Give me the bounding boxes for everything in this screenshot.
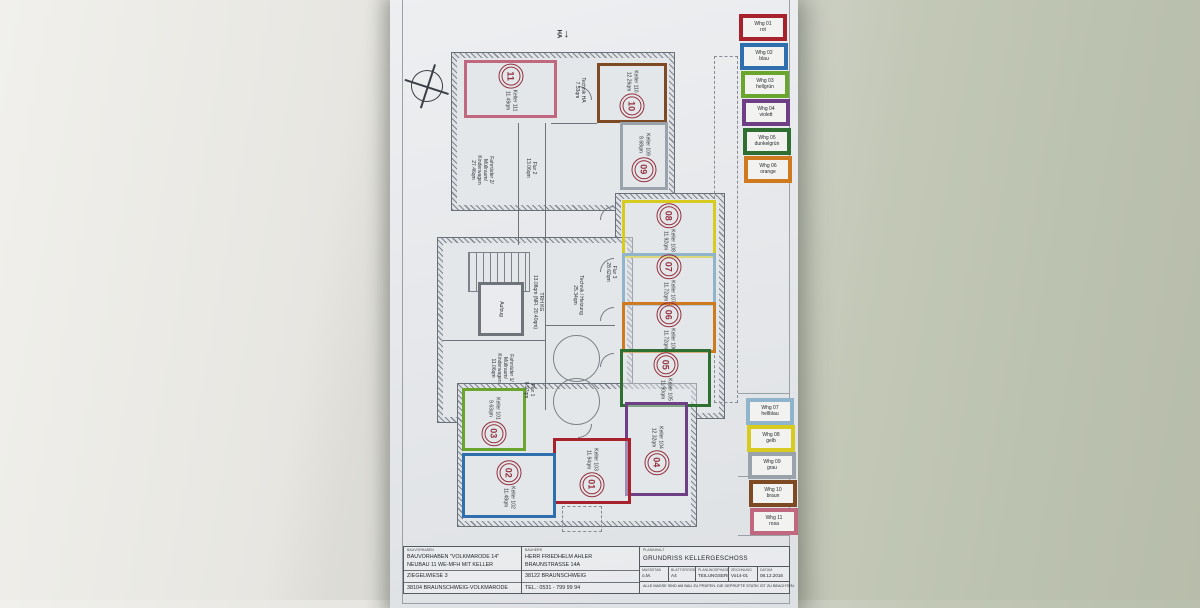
legend-item-whg-05: Whg 05dunkelgrün [743,128,791,155]
partition-line [551,123,597,124]
partition-line [545,325,615,326]
title-block: BAUVORHABEN BAUVORHABEN "VOLKMARODE 14" … [403,546,790,594]
room-keller-109: Keller 1098.68qm 09 [620,122,668,190]
room-label: Keller 10811.92qm [663,229,676,252]
space-trh: TRH KG13.08qm (NFl. 20.40qm) [532,275,544,329]
room-keller-110: Keller 11012.26qm 10 [597,63,667,123]
legend-item-whg-06: Whg 06orange [744,156,792,183]
unit-number-badge: 09 [635,160,654,179]
client-line: BRAUNSTRASSE 14A [525,561,636,569]
unit-number-badge: 05 [656,355,675,374]
room-label: Keller 10412.32qm [650,426,663,449]
unit-number-badge: 04 [647,453,666,472]
client-line: 38122 BRAUNSCHWEIG [525,572,636,580]
ha-label: HA [555,30,561,39]
legend-divider [738,476,790,477]
legend-item-whg-10: Whg 10braun [749,480,797,507]
partition-line [545,123,546,410]
heating-tank [553,378,600,425]
dashed-outline-east [714,56,738,403]
room-keller-106: 06 Keller 10611.72qm [622,302,716,353]
legend-item-whg-07: Whg 07hellblau [746,398,794,425]
partition-line [443,340,545,341]
legend-item-whg-09: Whg 09grau [748,452,796,479]
room-keller-111: 11 Keller 11111.49qm [464,60,557,118]
room-keller-105: 05 Keller 10511.90qm [620,349,711,407]
title-block-project: BAUVORHABEN BAUVORHABEN "VOLKMARODE 14" … [404,547,522,593]
unit-number-badge: 02 [500,463,519,482]
unit-number-badge: 01 [583,475,602,494]
room-label: Keller 10211.48qm [503,486,516,509]
space-technik-heizung: Technik / Heizung25.34qm [572,274,584,316]
space-fahrraeder-2: Fahrräder 2/ Müllraum/ Kinderwagen27.46q… [470,149,494,191]
elevator-label: Aufzug [498,301,504,317]
room-label: Keller 11012.26qm [626,70,639,92]
room-label: Keller 1019.63qm [488,397,501,420]
project-line: BAUVORHABEN "VOLKMARODE 14" [407,553,518,561]
title-block-client: BAUHERR HERR FRIEDHELM AHLER BRAUNSTRASS… [522,547,640,593]
space-fahrraeder-1: Fahrräder 1/ Müllraum/ Kinderwagen11.06q… [490,347,514,389]
room-keller-108: 08 Keller 10811.92qm [622,200,716,258]
unit-number-badge: 07 [660,257,679,276]
unit-number-badge: 10 [623,97,642,116]
down-arrow-icon: ↓ [564,28,570,40]
unit-number-badge: 06 [660,305,679,324]
room-label: Keller 10511.90qm [659,378,672,401]
drawing-title: GRUNDRISS KELLERGESCHOSS [643,555,786,562]
legend-divider [738,535,790,536]
field-blattgroesse: BLATTGRÖSSEA4 [669,567,696,581]
title-block-note: ALLE MASSE SIND AM BAU ZU PRÜFEN. DIE GE… [640,582,789,589]
room-label: Keller 10311.94qm [586,448,599,471]
project-line: 38104 BRAUNSCHWEIG-VOLKMARODE [407,584,518,592]
room-label: Keller 11111.49qm [504,90,517,112]
room-label: Keller 10711.72qm [663,280,676,303]
room-keller-102: 02 Keller 10211.48qm [462,453,556,518]
dashed-outline-south [562,506,602,532]
client-line: TEL.: 0531 - 799 99 94 [525,584,636,592]
legend-item-whg-01: Whg 01rot [739,14,787,41]
legend-item-whg-04: Whg 04violett [742,99,790,126]
space-flur-3: Flur 328.62qm [605,251,617,293]
elevator-shaft: Aufzug [478,282,524,336]
legend-divider [738,393,790,394]
unit-number-badge: 11 [501,67,520,86]
field-datum: DATUM08.12.2016 [758,567,789,581]
field-planungsphase: PLANUNGSPHASETEILUNGSERKL. [696,567,729,581]
legend-item-whg-03: Whg 03hellgrün [741,71,789,98]
field-massstab: MASSSTABo.M. [640,567,669,581]
heating-tank [553,335,600,382]
field-zeichnung: ZEICHNUNGVo14-01 [729,567,758,581]
space-flur-2: Flur 213.06qm [525,147,537,189]
legend-item-whg-02: Whg 02blau [740,43,788,70]
space-flur-1: Flur 18.97qm [523,369,535,411]
project-line: ZIEGELWIESE 3 [407,572,518,580]
title-block-content: PLANINHALT GRUNDRISS KELLERGESCHOSS MASS… [640,547,789,593]
room-keller-107: 07 Keller 10711.72qm [622,253,716,306]
room-keller-101: Keller 1019.63qm 03 [462,388,526,451]
room-label: Keller 1098.68qm [638,133,651,156]
client-line: HERR FRIEDHELM AHLER [525,553,636,561]
room-label: Keller 10611.72qm [663,328,676,351]
legend-item-whg-08: Whg 08gelb [747,425,795,452]
room-keller-104: Keller 10412.32qm 04 [625,402,688,496]
plan-sheet-paper: HA ↓ Aufzug 11 Keller 11111.49qm Keller … [390,0,798,608]
unit-number-badge: 08 [660,206,679,225]
legend-item-whg-11: Whg 11rosa [750,508,798,535]
space-technik-ha: Technik HA7.33qm [574,69,586,111]
ha-connection-marker: HA ↓ [554,28,569,40]
partition-line [518,123,519,245]
planinhalt-label: PLANINHALT [643,548,786,553]
unit-number-badge: 03 [485,423,504,442]
project-line: NEUBAU 11 WE-MFH MIT KELLER [407,561,518,569]
room-keller-103: Keller 10311.94qm 01 [553,438,631,504]
